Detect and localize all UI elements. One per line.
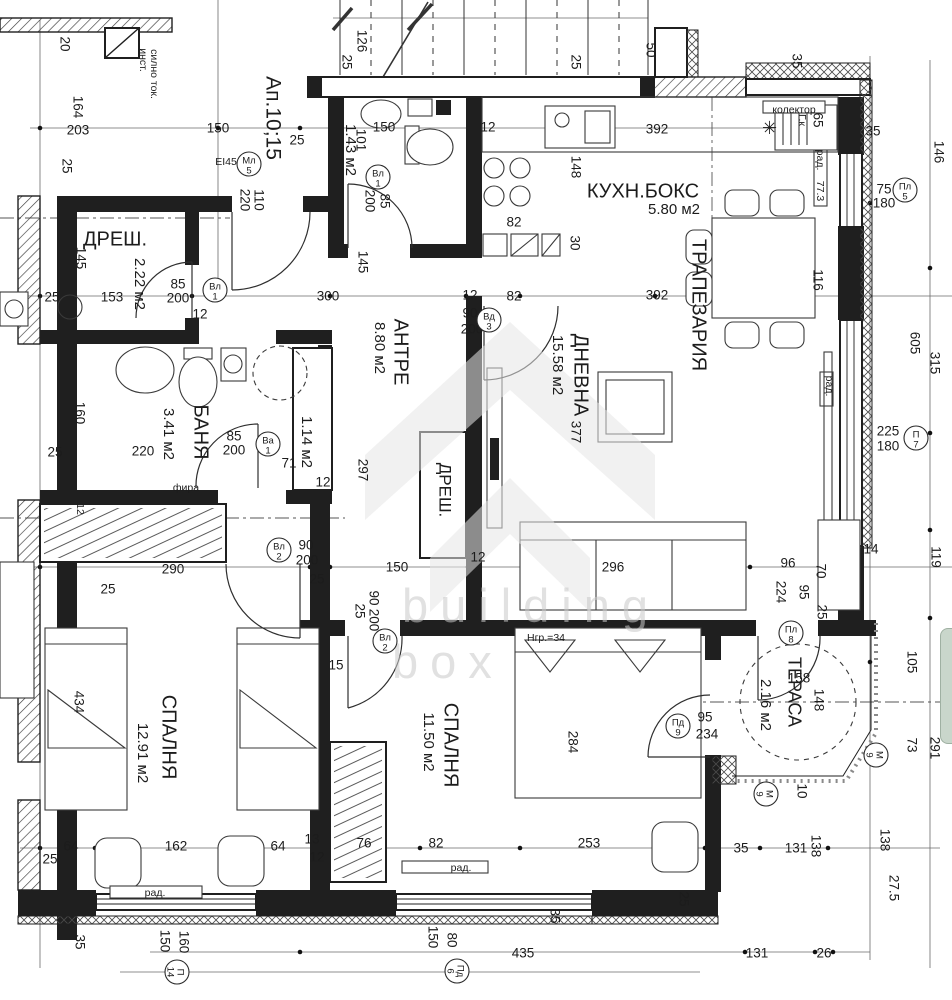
label-dim: 90 (298, 538, 313, 553)
label-room: СПАЛНЯ (440, 703, 462, 788)
label-dim: 70 (813, 563, 828, 578)
door-tag-text: 9 (675, 728, 680, 739)
label-dim: 35 (733, 841, 748, 856)
label-area: 11.50 м2 (420, 712, 437, 771)
label-small: рад. (145, 887, 166, 899)
label-dim: 80 (444, 932, 459, 947)
door-tag-text: 2 (382, 643, 387, 654)
label-dim: 119 (928, 546, 943, 568)
door-tag: М9 (863, 743, 888, 767)
label-dim: 50 (643, 42, 658, 57)
cooktop-symbol: ✳ (762, 118, 777, 138)
chair (725, 190, 759, 216)
label-dim: 90 (462, 306, 477, 321)
label-dim: 12 (309, 850, 324, 865)
door-tag-text: 8 (788, 635, 793, 646)
label-dim: 101 (353, 129, 368, 152)
label-dim: 85 (377, 193, 392, 208)
label-small: инст. (137, 48, 149, 71)
label-dim: 377 (568, 421, 583, 444)
label-dim: 200 (366, 609, 381, 632)
label-dim: 71 (281, 456, 296, 471)
label-dim: 200 (296, 553, 319, 568)
label-small: колектор (772, 104, 816, 116)
label-dim: 200 (167, 291, 190, 306)
floor-plan: ✳ (0, 0, 952, 1000)
label-dim: 164 (70, 96, 85, 119)
label-dim: 150 (373, 120, 396, 135)
label-area: 8.80 м2 (371, 322, 388, 374)
label-dim: 20 (57, 36, 72, 51)
label-dim: 25 (289, 133, 304, 148)
label-dim: 12 (192, 307, 207, 322)
label-dim: 290 (162, 562, 185, 577)
label-dim: 25 (44, 290, 59, 305)
label-dim: 220 (132, 444, 155, 459)
label-dim: 150 (157, 930, 172, 953)
label-small: фира (173, 482, 199, 494)
label-small: Нгр.=34 (527, 632, 565, 644)
label-dim: 234 (696, 727, 719, 742)
door-tag-text: 1 (212, 292, 217, 303)
label-dim: 35 (865, 124, 880, 139)
label-dim: 392 (646, 288, 669, 303)
label-dim: 296 (602, 560, 625, 575)
door-tag-text: 5 (902, 192, 907, 203)
label-dim: 148 (811, 689, 826, 712)
label-dim: 315 (927, 352, 942, 375)
desk-chair (218, 836, 264, 886)
label-dim: 150 (386, 560, 409, 575)
label-dim: 25 (568, 54, 583, 69)
label-dim: 146 (931, 141, 946, 164)
door-tag: Ва1 (256, 432, 280, 457)
label-dim: 145 (355, 251, 370, 274)
label-dim: 203 (67, 123, 90, 138)
label-area: 3.41 м2 (160, 408, 177, 460)
label-dim: 435 (512, 946, 535, 961)
label-dim: 82 (428, 836, 443, 851)
label-dim: 116 (810, 269, 825, 291)
label-dim: 14 (863, 542, 879, 557)
label-room: ДРЕШ. (436, 463, 455, 518)
stove-burner (484, 158, 504, 178)
label-dim: 200 (223, 443, 246, 458)
entry-door-arc (232, 212, 310, 290)
label-dim: 300 (317, 289, 340, 304)
wc-toilet (407, 129, 453, 165)
label-area: 12.91 м2 (134, 723, 151, 783)
door-tag: Вл2 (373, 629, 397, 654)
label-dim: 105 (904, 651, 919, 674)
label-dim: 434 (71, 691, 86, 714)
armchair (598, 372, 672, 442)
label-dim: 138 (808, 835, 823, 858)
door-tag: Пд9 (666, 714, 690, 739)
label-dim: 30 (567, 235, 582, 250)
label-dim: 35 (72, 934, 87, 949)
label-dim: 64 (63, 839, 79, 854)
label-dim: 10 (794, 783, 809, 798)
label-dim: 150 (425, 926, 440, 949)
label-dim: 12 (462, 288, 477, 303)
label-dim: 26 (816, 946, 831, 961)
label-dim: 25 (47, 445, 62, 460)
door-tag: Мл5 (237, 152, 261, 177)
label-small: Г.к (796, 114, 808, 126)
label-dim: 96 (780, 556, 795, 571)
label-dim: 180 (873, 196, 896, 211)
label-dim: 35 (789, 53, 804, 68)
label-dim: 392 (646, 122, 669, 137)
kitchen-sink (545, 106, 615, 148)
label-dim: 82 (506, 289, 521, 304)
sofa (520, 522, 746, 610)
label-dim: 284 (565, 731, 580, 754)
door-tag-text: 14 (164, 967, 175, 978)
label-dim: 145 (73, 247, 88, 270)
label-dim: 64 (270, 839, 286, 854)
label-dim: 73 (904, 737, 919, 752)
label-dim: 220 (237, 189, 252, 212)
label-dim: 25 (676, 891, 691, 906)
door-tag: П7 (904, 426, 928, 451)
desk-chair (652, 822, 698, 872)
door-tag-text: 5 (246, 166, 251, 177)
label-dim: 85 (170, 277, 185, 292)
label-small: рад. (451, 862, 472, 874)
label-room: ДНЕВНА (570, 334, 592, 417)
label-small: рад. (823, 376, 835, 397)
label-dim: 25 (42, 852, 57, 867)
label-room: СПАЛНЯ (158, 695, 180, 780)
label-room: ТРАПЕЗАРИЯ (688, 239, 710, 371)
label-dim: 25 (309, 572, 324, 587)
door-tag-text: 9 (863, 752, 874, 757)
label-dim: 253 (578, 836, 601, 851)
label-dim: 297 (355, 459, 370, 482)
label-dim: 162 (165, 839, 188, 854)
label-dim: 95 (697, 710, 712, 725)
label-dim: 224 (773, 581, 788, 604)
label-dim: 153 (101, 290, 124, 305)
label-room: АНТРЕ (390, 319, 412, 386)
door-tag: Пд6 (444, 959, 469, 983)
label-dim: 160 (72, 402, 87, 425)
label-dim: 126 (354, 30, 369, 53)
door-tag-text: 6 (444, 968, 455, 973)
label-room: БАНЯ (190, 405, 212, 460)
label-dim: 12 (470, 550, 485, 565)
label-small: рад. (814, 150, 826, 171)
label-area: 2.22 м2 (131, 258, 148, 310)
door-tag-text: 9 (753, 791, 764, 796)
label-dim: 158 (788, 671, 811, 686)
desk-chair (95, 838, 141, 888)
toilet (179, 357, 217, 407)
label-dim: 25 (59, 158, 74, 173)
label-dim: 110 (251, 189, 266, 211)
label-area: 1.14 м2 (298, 416, 315, 468)
door-tag: М9 (753, 782, 778, 806)
door-tag-text: 1 (265, 446, 270, 457)
door-tag: Вл2 (267, 538, 291, 563)
label-dim: 65 (810, 112, 825, 127)
label-dim: 25 (814, 604, 829, 619)
door-tag-text: 3 (486, 322, 491, 333)
bathroom-sink (116, 347, 174, 393)
label-dim: 148 (568, 156, 583, 179)
label-area: 2.16 м2 (757, 679, 774, 731)
label-dim: 180 (877, 439, 900, 454)
label-area: 5.80 м2 (648, 201, 700, 218)
label-dim: 225 (877, 424, 900, 439)
label-dim: 85 (226, 429, 241, 444)
label-small: 77.3 (814, 181, 826, 202)
label-dim: 150 (207, 121, 230, 136)
door-tag: Пл5 (893, 178, 917, 203)
label-dim: 75 (876, 182, 891, 197)
door-tag-text: 1 (375, 179, 380, 190)
label-dim: 200 (362, 190, 377, 213)
label-dim: 25 (100, 582, 115, 597)
label-dim: 95 (796, 584, 811, 599)
door-tag: Вл1 (203, 278, 227, 303)
door-tag: Вд3 (477, 308, 501, 333)
label-small: EI45 (215, 156, 237, 168)
door-tag: Пл8 (779, 621, 803, 646)
label-area: 15.58 м2 (549, 335, 566, 395)
door-tag-text: 2 (276, 552, 281, 563)
label-dim: 25 (339, 54, 354, 69)
label-dim: 27.5 (886, 875, 901, 901)
label-dim: 605 (907, 332, 922, 355)
label-dim: 138 (877, 829, 892, 852)
label-dim: 35 (547, 908, 562, 923)
label-dim: 12 (315, 475, 330, 490)
door-tag-text: 7 (913, 440, 918, 451)
door-tag: П14 (164, 960, 189, 984)
label-dim: 82 (506, 215, 521, 230)
label-dim: 90 (366, 590, 381, 605)
label-small: 12 (74, 503, 86, 515)
label-dim: 131 (785, 841, 808, 856)
staircase (333, 0, 648, 77)
label-dim: 15 (328, 658, 343, 673)
label-dim: 76 (356, 836, 371, 851)
door-tag: Вл1 (366, 165, 390, 190)
label-small: силно ток. (148, 49, 160, 99)
side-panel-tab[interactable] (940, 628, 952, 744)
label-dim: 160 (176, 931, 191, 954)
label-room: КУХН.БОКС (587, 180, 699, 202)
floor-plan-drawing: ✳ (0, 0, 952, 1000)
label-dim: 131 (746, 946, 769, 961)
label-dim: 25 (352, 603, 367, 618)
label-dim: 12 (480, 120, 495, 135)
label-room: ТЕРАСА (784, 657, 804, 727)
watermark-text-2: box (392, 635, 504, 688)
label-dim: 13 (304, 832, 319, 847)
label-title: Ап.10;15 (261, 76, 284, 160)
dining-table (712, 218, 815, 318)
label-room: ДРЕШ. (83, 228, 147, 250)
